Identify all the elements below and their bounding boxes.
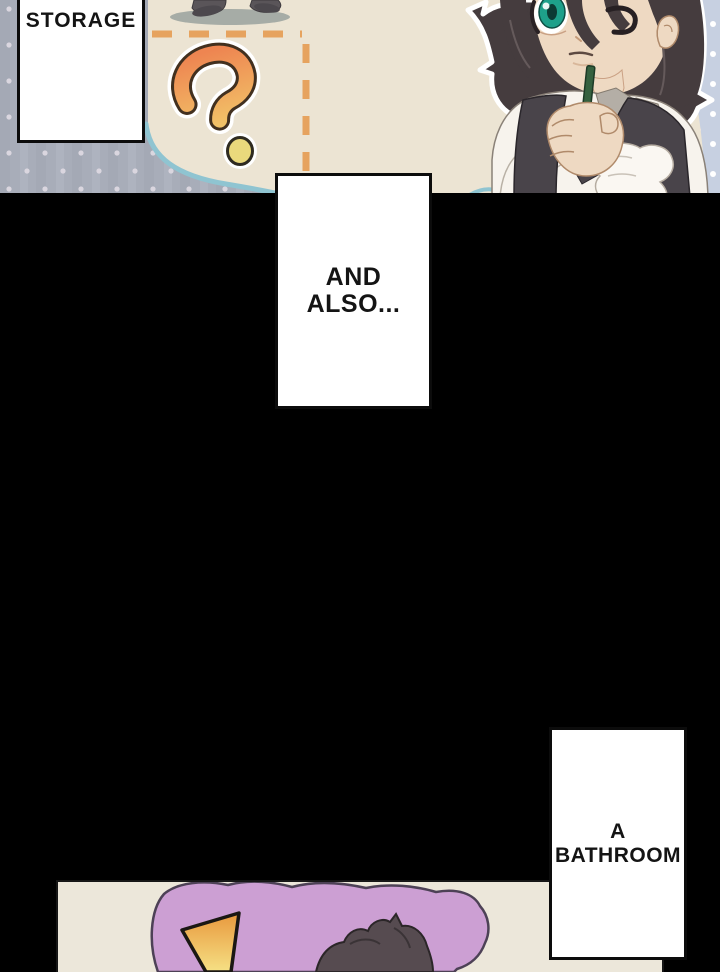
comic-page: STORAGE AND ALSO... A BATHROOM bbox=[0, 0, 720, 972]
narration-text-and-also: AND ALSO... bbox=[278, 264, 429, 319]
character-illustration bbox=[468, 0, 712, 193]
narration-box-and-also: AND ALSO... bbox=[275, 173, 432, 409]
narration-text-a-bathroom: A BATHROOM bbox=[552, 820, 684, 866]
speech-box-storage: STORAGE bbox=[17, 0, 145, 143]
narration-box-a-bathroom: A BATHROOM bbox=[549, 727, 687, 960]
question-dot bbox=[228, 138, 253, 165]
speech-text-storage: STORAGE bbox=[26, 9, 136, 32]
